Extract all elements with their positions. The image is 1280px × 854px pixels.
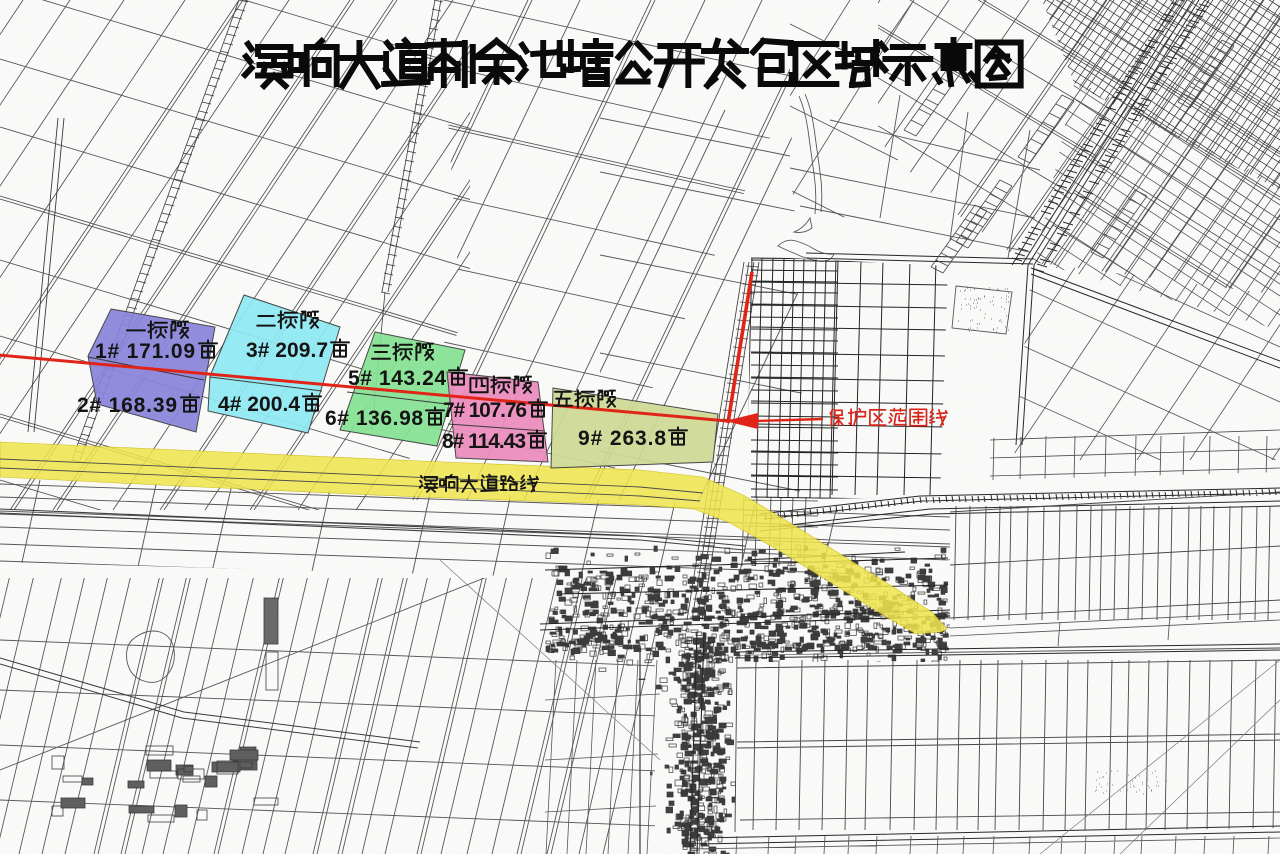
svg-text:3# 209.7: 3# 209.7 <box>246 339 328 362</box>
svg-text:2# 168.39: 2# 168.39 <box>77 394 177 417</box>
svg-text:8# 114.43: 8# 114.43 <box>442 430 526 453</box>
svg-text:1# 171.09: 1# 171.09 <box>95 340 195 363</box>
svg-text:4# 200.4: 4# 200.4 <box>218 393 300 416</box>
svg-text:9# 263.8: 9# 263.8 <box>578 427 666 450</box>
svg-text:7# 107.76: 7# 107.76 <box>443 399 527 422</box>
svg-text:5# 143.24: 5# 143.24 <box>348 367 446 390</box>
svg-text:6# 136.98: 6# 136.98 <box>325 407 423 430</box>
